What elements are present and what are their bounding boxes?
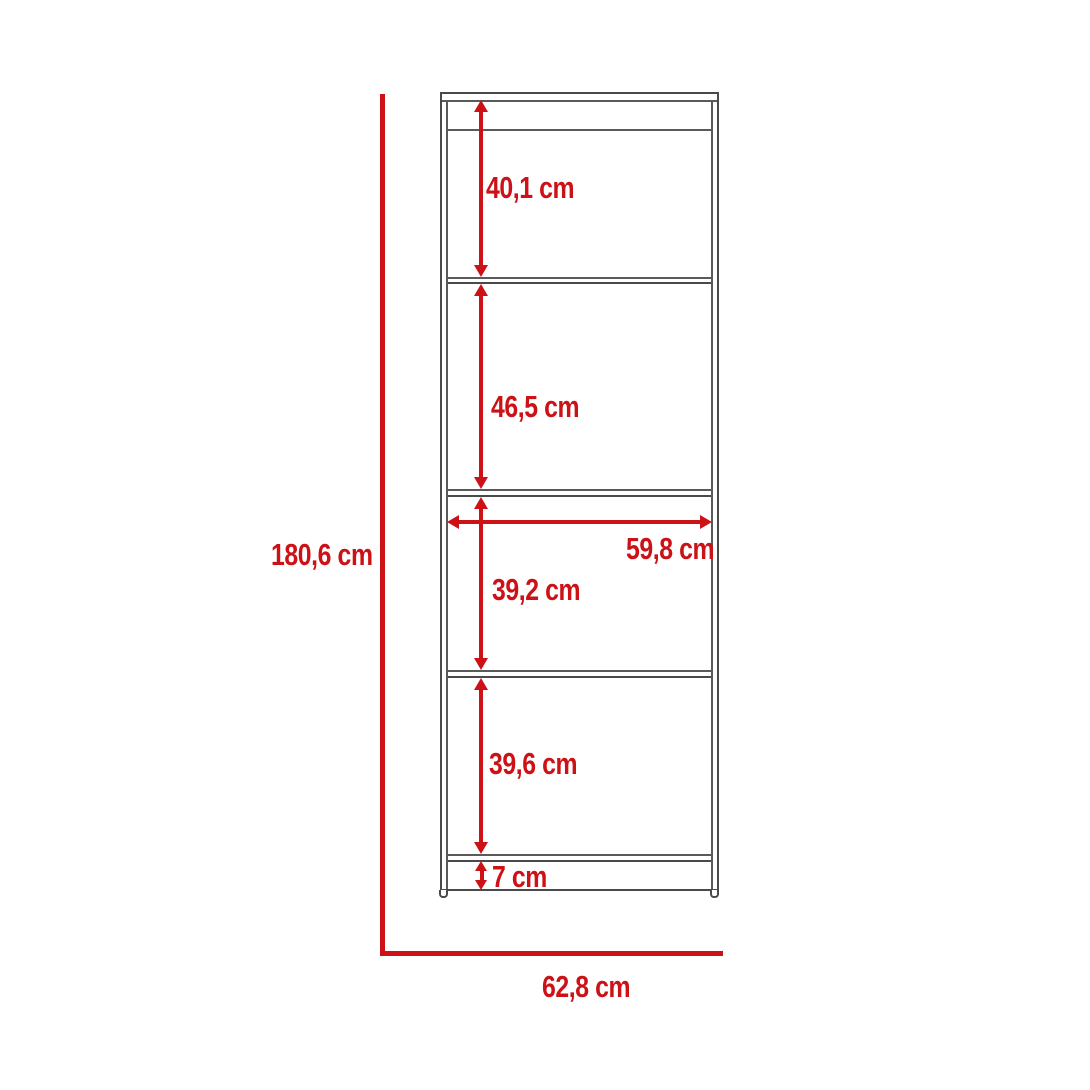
dimension-arrow-plinth xyxy=(475,861,489,890)
label-plinth-height: 7 cm xyxy=(492,861,547,892)
furniture-dimension-diagram: 40,1 cm 46,5 cm 59,8 cm 39,2 cm 39,6 cm … xyxy=(0,0,1090,1090)
label-second-shelf-space: 46,5 cm xyxy=(491,391,579,422)
label-interior-width: 59,8 cm xyxy=(626,533,714,564)
dimension-arrow-second-shelf-space xyxy=(474,284,488,489)
label-overall-width: 62,8 cm xyxy=(542,971,630,1002)
shelf4-top-line xyxy=(448,854,711,856)
arrow-down-icon xyxy=(474,265,488,277)
left-foot xyxy=(439,890,448,898)
arrow-down-icon xyxy=(474,842,488,854)
cabinet-top-line xyxy=(440,92,719,94)
arrow-down-icon xyxy=(474,477,488,489)
shelf3-top-line xyxy=(448,670,711,672)
label-overall-height: 180,6 cm xyxy=(271,539,373,570)
dimension-arrow-fourth-shelf-space xyxy=(474,678,488,854)
overall-width-dimension-line xyxy=(380,951,723,956)
arrow-down-icon xyxy=(474,658,488,670)
cabinet-left-outer-line xyxy=(440,92,442,891)
arrow-right-icon xyxy=(700,515,712,529)
dimension-arrow-interior-width xyxy=(447,515,712,529)
label-fourth-shelf-space: 39,6 cm xyxy=(489,748,577,779)
cabinet-right-inner-line xyxy=(711,100,713,889)
arrow-down-icon xyxy=(475,880,487,890)
shelf2-top-line xyxy=(448,489,711,491)
label-third-shelf-space: 39,2 cm xyxy=(492,574,580,605)
cabinet-right-outer-line xyxy=(717,92,719,891)
label-top-shelf-space: 40,1 cm xyxy=(486,172,574,203)
overall-height-dimension-line xyxy=(380,94,385,956)
right-foot xyxy=(710,890,719,898)
shelf1-top-line xyxy=(448,277,711,279)
